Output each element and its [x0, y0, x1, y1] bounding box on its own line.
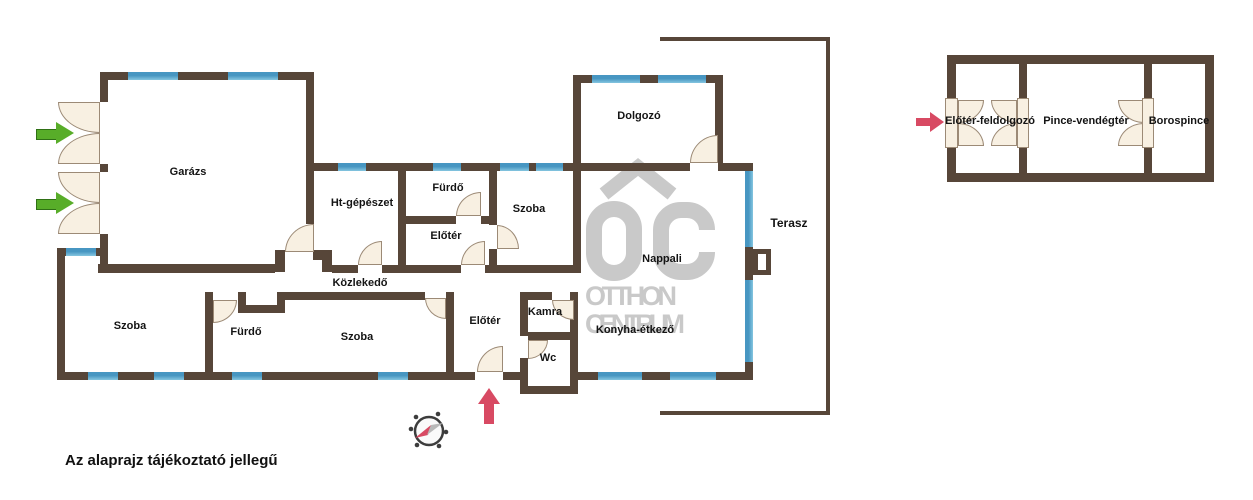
room-label-szoba-bottom-middle: Szoba [341, 331, 373, 343]
cellar-entrance-arrow-head [930, 112, 944, 132]
window [670, 372, 716, 380]
room-label-dolgozo: Dolgozó [617, 110, 660, 122]
watermark-line1: OTTHON [585, 281, 677, 311]
door-arc [285, 224, 314, 252]
wall [1019, 64, 1027, 100]
garage-arrow-2-head [56, 192, 74, 214]
otthon-centrum-watermark: OTTHON CENTRUM [560, 150, 750, 350]
wall [947, 55, 1214, 64]
door-arc [213, 300, 237, 323]
room-label-szoba-top: Szoba [513, 203, 545, 215]
wall [277, 292, 285, 313]
wall [520, 386, 578, 394]
fireplace-wall [745, 247, 753, 283]
window [592, 75, 640, 83]
window [66, 248, 96, 256]
wall [205, 292, 213, 376]
wall [332, 265, 358, 273]
garage-arrow-2 [36, 199, 58, 210]
room-label-eloter-middle: Előtér [430, 230, 461, 242]
terrace-wall [826, 37, 830, 415]
cellar-entrance-arrow [916, 118, 930, 126]
glass-wall [745, 171, 753, 247]
door-arc [358, 241, 382, 265]
wall [57, 248, 65, 380]
room-label-garazs: Garázs [170, 166, 207, 178]
wall [947, 55, 956, 98]
logo-letter-o [594, 209, 634, 273]
room-label-borospince: Borospince [1149, 115, 1210, 127]
terrace-wall [660, 37, 830, 41]
entrance-arrow-main [484, 404, 494, 424]
wall [1019, 146, 1027, 173]
wall [718, 163, 753, 171]
wall [100, 72, 108, 102]
room-label-pince-vendegter: Pince-vendégtér [1043, 115, 1129, 127]
wall [1144, 64, 1152, 100]
room-label-furdo-bottom: Fürdő [230, 326, 261, 338]
glass-wall [745, 280, 753, 362]
wall [489, 171, 497, 225]
wall [528, 332, 570, 340]
room-label-terasz: Terasz [770, 216, 807, 230]
wall [446, 292, 454, 380]
window [128, 72, 178, 80]
room-label-wc: Wc [540, 352, 557, 364]
window [232, 372, 262, 380]
window [500, 163, 529, 171]
wall [1144, 146, 1152, 173]
disclaimer-note: Az alaprajz tájékoztató jellegű [65, 452, 278, 469]
roof-chevron-icon [604, 167, 672, 194]
window [338, 163, 366, 171]
window [536, 163, 563, 171]
wall [520, 292, 528, 336]
wall [398, 216, 456, 224]
wall [98, 264, 275, 273]
door-arc [456, 192, 481, 216]
door-arc [497, 225, 519, 249]
room-label-konyha-etkezo: Konyha-étkező [596, 324, 674, 336]
room-label-kozlekedo: Közlekedő [332, 277, 387, 289]
floorplan-image: OTTHON CENTRUM [0, 0, 1253, 500]
window [433, 163, 461, 171]
wall [275, 250, 285, 272]
compass [406, 408, 452, 454]
room-label-kamra: Kamra [528, 306, 562, 318]
wall [485, 265, 581, 273]
room-label-szoba-bottom-left: Szoba [114, 320, 146, 332]
wall [100, 164, 108, 172]
wall [313, 250, 332, 260]
room-label-nappali: Nappali [642, 253, 682, 265]
garage-arrow-1 [36, 129, 58, 140]
wall [503, 372, 520, 380]
wall [947, 148, 956, 182]
door-arc [690, 135, 718, 163]
wall [947, 173, 1214, 182]
room-label-furdo-top: Fürdő [432, 182, 463, 194]
room-label-eloter-feldolgozo: Előtér-feldolgozó [945, 115, 1035, 127]
window [658, 75, 706, 83]
wall [285, 292, 425, 300]
wall [745, 362, 753, 380]
window [154, 372, 184, 380]
fireplace-inner [758, 254, 766, 270]
wall [573, 83, 581, 163]
window [378, 372, 408, 380]
wall [306, 72, 314, 224]
room-label-ht-gepeszet: Ht-gépészet [331, 197, 393, 209]
terrace-wall [660, 411, 830, 415]
window [598, 372, 642, 380]
door-arc [425, 298, 446, 319]
wall [382, 265, 461, 273]
door-arc [461, 241, 485, 265]
wall [573, 171, 581, 272]
garage-arrow-1-head [56, 122, 74, 144]
entrance-arrow-main-head [478, 388, 500, 404]
door-arc [477, 346, 503, 372]
wall [57, 372, 475, 380]
window [88, 372, 118, 380]
room-label-eloter-entry: Előtér [469, 315, 500, 327]
window [228, 72, 278, 80]
